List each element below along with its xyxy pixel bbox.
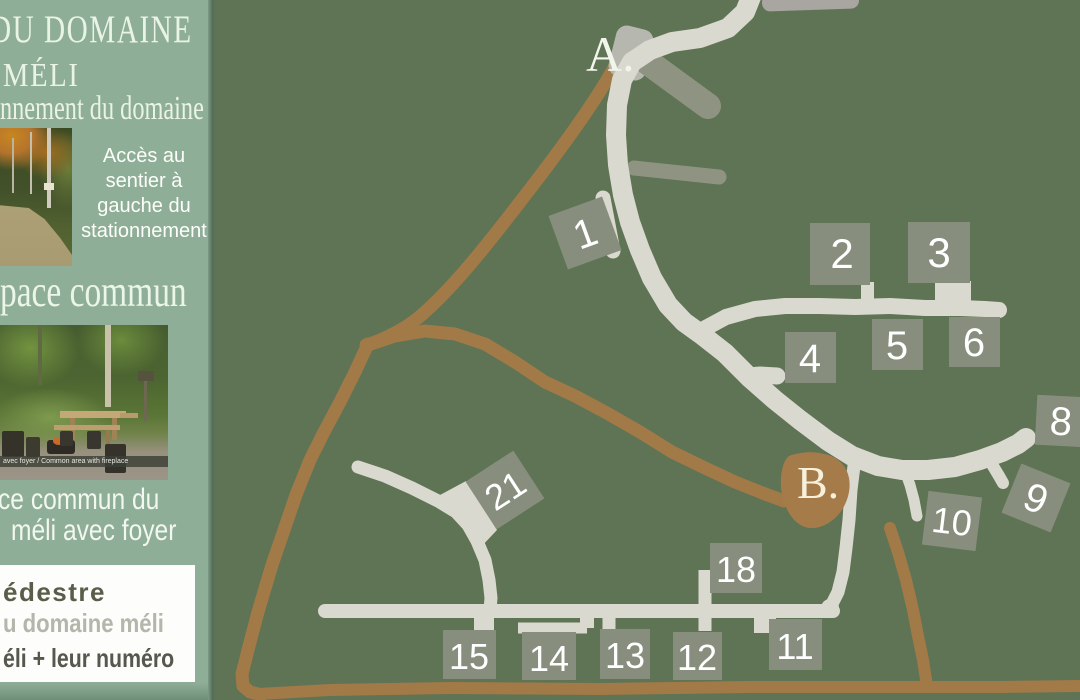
svg-text:3: 3 [927, 229, 950, 276]
svg-text:B.: B. [797, 457, 839, 508]
svg-text:15: 15 [449, 636, 489, 677]
svg-text:13: 13 [605, 635, 645, 676]
svg-text:4: 4 [799, 337, 821, 381]
svg-text:8: 8 [1049, 399, 1074, 444]
svg-text:2: 2 [830, 230, 853, 277]
svg-text:5: 5 [886, 324, 908, 368]
svg-text:14: 14 [529, 638, 569, 679]
svg-text:12: 12 [677, 637, 717, 678]
svg-text:10: 10 [930, 499, 975, 545]
svg-text:18: 18 [716, 549, 756, 590]
svg-text:A.: A. [586, 26, 635, 82]
svg-text:11: 11 [776, 626, 813, 667]
svg-text:6: 6 [963, 321, 985, 365]
